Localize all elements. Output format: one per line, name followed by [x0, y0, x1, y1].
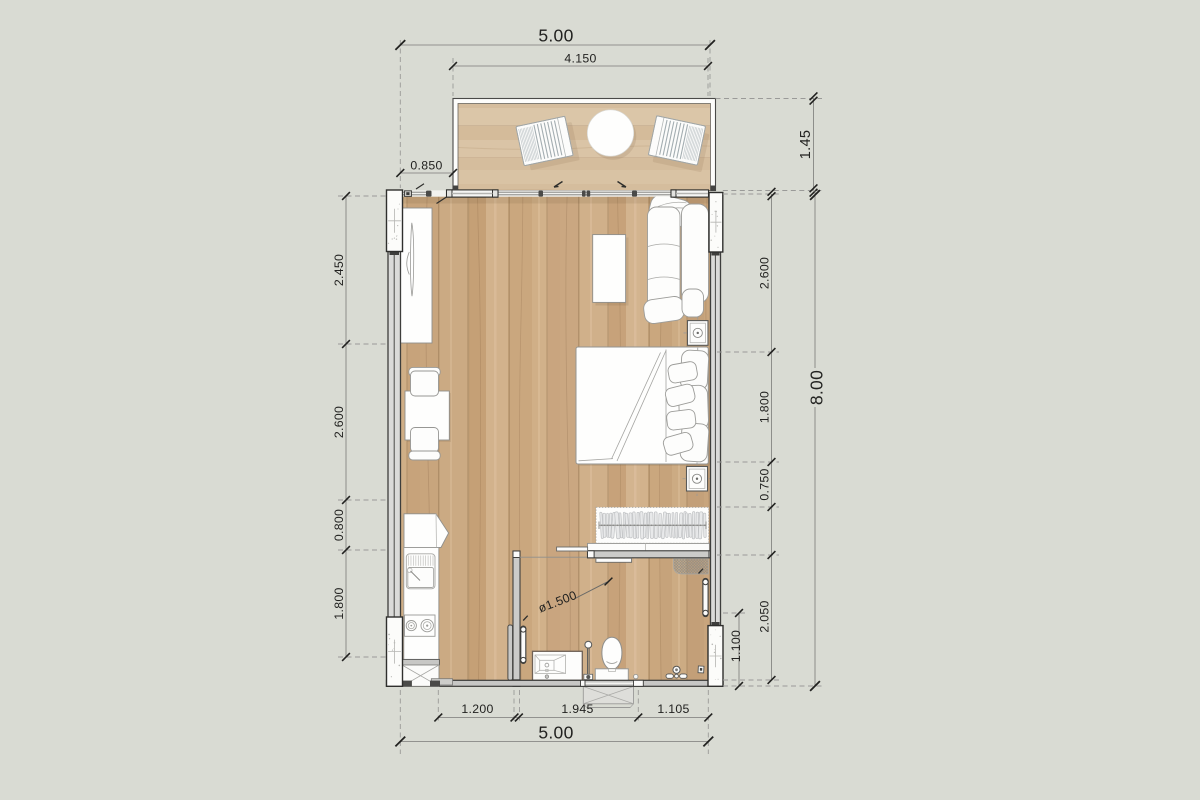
svg-text:4.150: 4.150 — [564, 52, 596, 66]
svg-text:2.450: 2.450 — [332, 254, 346, 286]
svg-text:1.105: 1.105 — [657, 702, 689, 716]
svg-text:1.945: 1.945 — [561, 702, 593, 716]
svg-text:0.800: 0.800 — [332, 509, 346, 541]
svg-text:1.800: 1.800 — [758, 391, 772, 423]
svg-text:1.45: 1.45 — [798, 130, 814, 159]
svg-text:8.00: 8.00 — [807, 370, 827, 405]
svg-text:0.750: 0.750 — [758, 468, 772, 500]
svg-text:5.00: 5.00 — [538, 26, 573, 46]
svg-text:1.800: 1.800 — [332, 587, 346, 619]
svg-text:5.00: 5.00 — [538, 723, 573, 743]
svg-text:2.600: 2.600 — [332, 406, 346, 438]
svg-text:1.200: 1.200 — [461, 702, 493, 716]
svg-text:2.600: 2.600 — [758, 257, 772, 289]
svg-text:1.100: 1.100 — [729, 630, 743, 662]
svg-text:0.850: 0.850 — [410, 159, 442, 173]
svg-text:2.050: 2.050 — [758, 600, 772, 632]
